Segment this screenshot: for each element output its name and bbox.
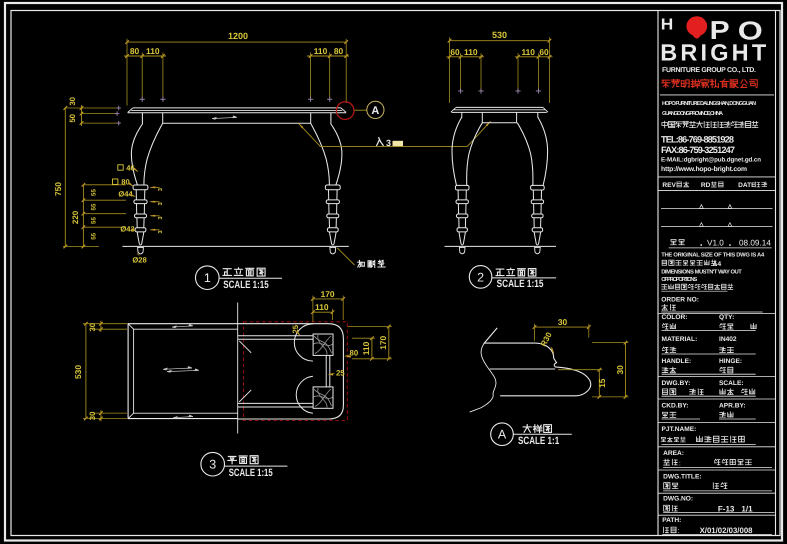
svg-text:30: 30 xyxy=(615,365,625,375)
svg-text:80: 80 xyxy=(121,178,129,187)
svg-text:30: 30 xyxy=(88,411,97,420)
svg-text:530: 530 xyxy=(73,365,83,379)
svg-text:30: 30 xyxy=(558,317,568,327)
svg-text:APR.BY:: APR.BY: xyxy=(719,403,746,410)
svg-text:E-MAIL:dgbright@pub.dgnet.gd.c: E-MAIL:dgbright@pub.dgnet.gd.cn xyxy=(661,156,761,163)
svg-text:ORDER NO:: ORDER NO: xyxy=(661,296,699,303)
svg-text:SCALE 1:15: SCALE 1:15 xyxy=(497,278,544,290)
svg-text:3: 3 xyxy=(386,138,391,148)
svg-text:http://www.hopo-bright.com: http://www.hopo-bright.com xyxy=(661,166,747,173)
svg-text:170: 170 xyxy=(321,289,335,299)
svg-text:HINGE:: HINGE: xyxy=(719,358,742,365)
svg-text:110: 110 xyxy=(315,302,329,312)
svg-text:DIMENSIONS MUSTN'T WAY OUT: DIMENSIONS MUSTN'T WAY OUT xyxy=(661,269,742,276)
svg-text:PJT.NAME:: PJT.NAME: xyxy=(662,426,697,433)
svg-text:TEL:86-769-8851928: TEL:86-769-8851928 xyxy=(661,134,734,144)
svg-text:110: 110 xyxy=(146,46,160,56)
svg-text:55: 55 xyxy=(90,203,97,210)
svg-text:55: 55 xyxy=(90,232,97,239)
svg-text:FAX:86-759-3251247: FAX:86-759-3251247 xyxy=(661,145,735,155)
svg-text:60: 60 xyxy=(450,47,460,57)
svg-text:A4: A4 xyxy=(713,261,722,268)
svg-text:110: 110 xyxy=(361,341,371,355)
svg-text::: : xyxy=(679,460,681,467)
svg-text:PATH:: PATH: xyxy=(662,517,681,524)
svg-text:AREA:: AREA: xyxy=(663,450,684,457)
svg-text:SCALE 1:1: SCALE 1:1 xyxy=(518,435,559,447)
svg-text:80: 80 xyxy=(130,46,140,56)
svg-text:50: 50 xyxy=(68,113,77,122)
svg-text:110: 110 xyxy=(521,47,535,57)
svg-text:1: 1 xyxy=(204,271,211,285)
svg-text:QTY:: QTY: xyxy=(719,314,734,321)
svg-text:RD: RD xyxy=(701,182,711,189)
svg-text:25: 25 xyxy=(291,324,300,333)
svg-text:A: A xyxy=(498,428,507,442)
svg-text:1200: 1200 xyxy=(228,31,248,41)
svg-text:HOPO FURNITURE DALINGSHAN, DON: HOPO FURNITURE DALINGSHAN, DONGGUAN xyxy=(662,101,756,107)
svg-text:IN402: IN402 xyxy=(719,336,737,343)
svg-text:60: 60 xyxy=(539,47,549,57)
svg-text:1/1: 1/1 xyxy=(741,504,753,513)
svg-text:THE ORIGINAL SIZE OF THIS DWG: THE ORIGINAL SIZE OF THIS DWG IS A4 xyxy=(661,252,765,259)
svg-text:30: 30 xyxy=(88,322,97,331)
svg-text:MATERIAL:: MATERIAL: xyxy=(662,336,698,343)
svg-text:530: 530 xyxy=(492,30,507,40)
svg-text:110: 110 xyxy=(314,46,328,56)
svg-text:80: 80 xyxy=(334,46,344,56)
svg-text:GUANGDONG PROVINCE, CHINA: GUANGDONG PROVINCE, CHINA xyxy=(662,111,723,117)
svg-text:220: 220 xyxy=(71,210,80,224)
svg-text:110: 110 xyxy=(464,47,478,57)
svg-text:15: 15 xyxy=(597,378,607,388)
svg-text:30: 30 xyxy=(68,96,77,105)
svg-text:46: 46 xyxy=(126,163,134,172)
svg-text:25: 25 xyxy=(336,369,345,378)
svg-text:55: 55 xyxy=(90,189,97,196)
svg-text:DWG.BY:: DWG.BY: xyxy=(662,380,691,387)
svg-text:08.09.14: 08.09.14 xyxy=(739,238,771,247)
svg-text:SCALE 1:15: SCALE 1:15 xyxy=(229,467,273,479)
svg-text:SCALE 1:15: SCALE 1:15 xyxy=(223,279,268,291)
svg-text:OF PROPORTIONS: OF PROPORTIONS xyxy=(661,276,697,283)
svg-text:170: 170 xyxy=(378,335,388,349)
svg-text:2: 2 xyxy=(477,270,484,284)
svg-text:HANDLE:: HANDLE: xyxy=(662,358,692,365)
svg-text:80: 80 xyxy=(350,348,359,357)
svg-text:CKD.BY:: CKD.BY: xyxy=(662,403,689,410)
svg-text:REV: REV xyxy=(662,182,676,189)
svg-text:DWG.NO:: DWG.NO: xyxy=(663,496,693,503)
svg-text:3: 3 xyxy=(209,458,216,472)
svg-text:COLOR:: COLOR: xyxy=(662,314,688,321)
svg-text:FURNITURE GROUP CO., LTD.: FURNITURE GROUP CO., LTD. xyxy=(662,67,756,74)
svg-text:X/01/02/03/008: X/01/02/03/008 xyxy=(700,526,754,535)
svg-text:H: H xyxy=(661,17,674,34)
svg-text:750: 750 xyxy=(53,182,63,196)
svg-text:Ø28: Ø28 xyxy=(132,255,146,264)
svg-text:SCALE:: SCALE: xyxy=(719,380,744,387)
svg-text:F-13: F-13 xyxy=(718,504,735,513)
svg-text:A: A xyxy=(371,105,379,117)
svg-text:DWG.TITLE:: DWG.TITLE: xyxy=(663,473,701,480)
svg-text:55: 55 xyxy=(90,217,97,224)
svg-text:BRIGHT: BRIGHT xyxy=(660,39,767,65)
svg-text:DATE: DATE xyxy=(738,182,756,189)
svg-text:Ø44: Ø44 xyxy=(118,189,133,198)
svg-text:V1.0: V1.0 xyxy=(707,238,724,247)
